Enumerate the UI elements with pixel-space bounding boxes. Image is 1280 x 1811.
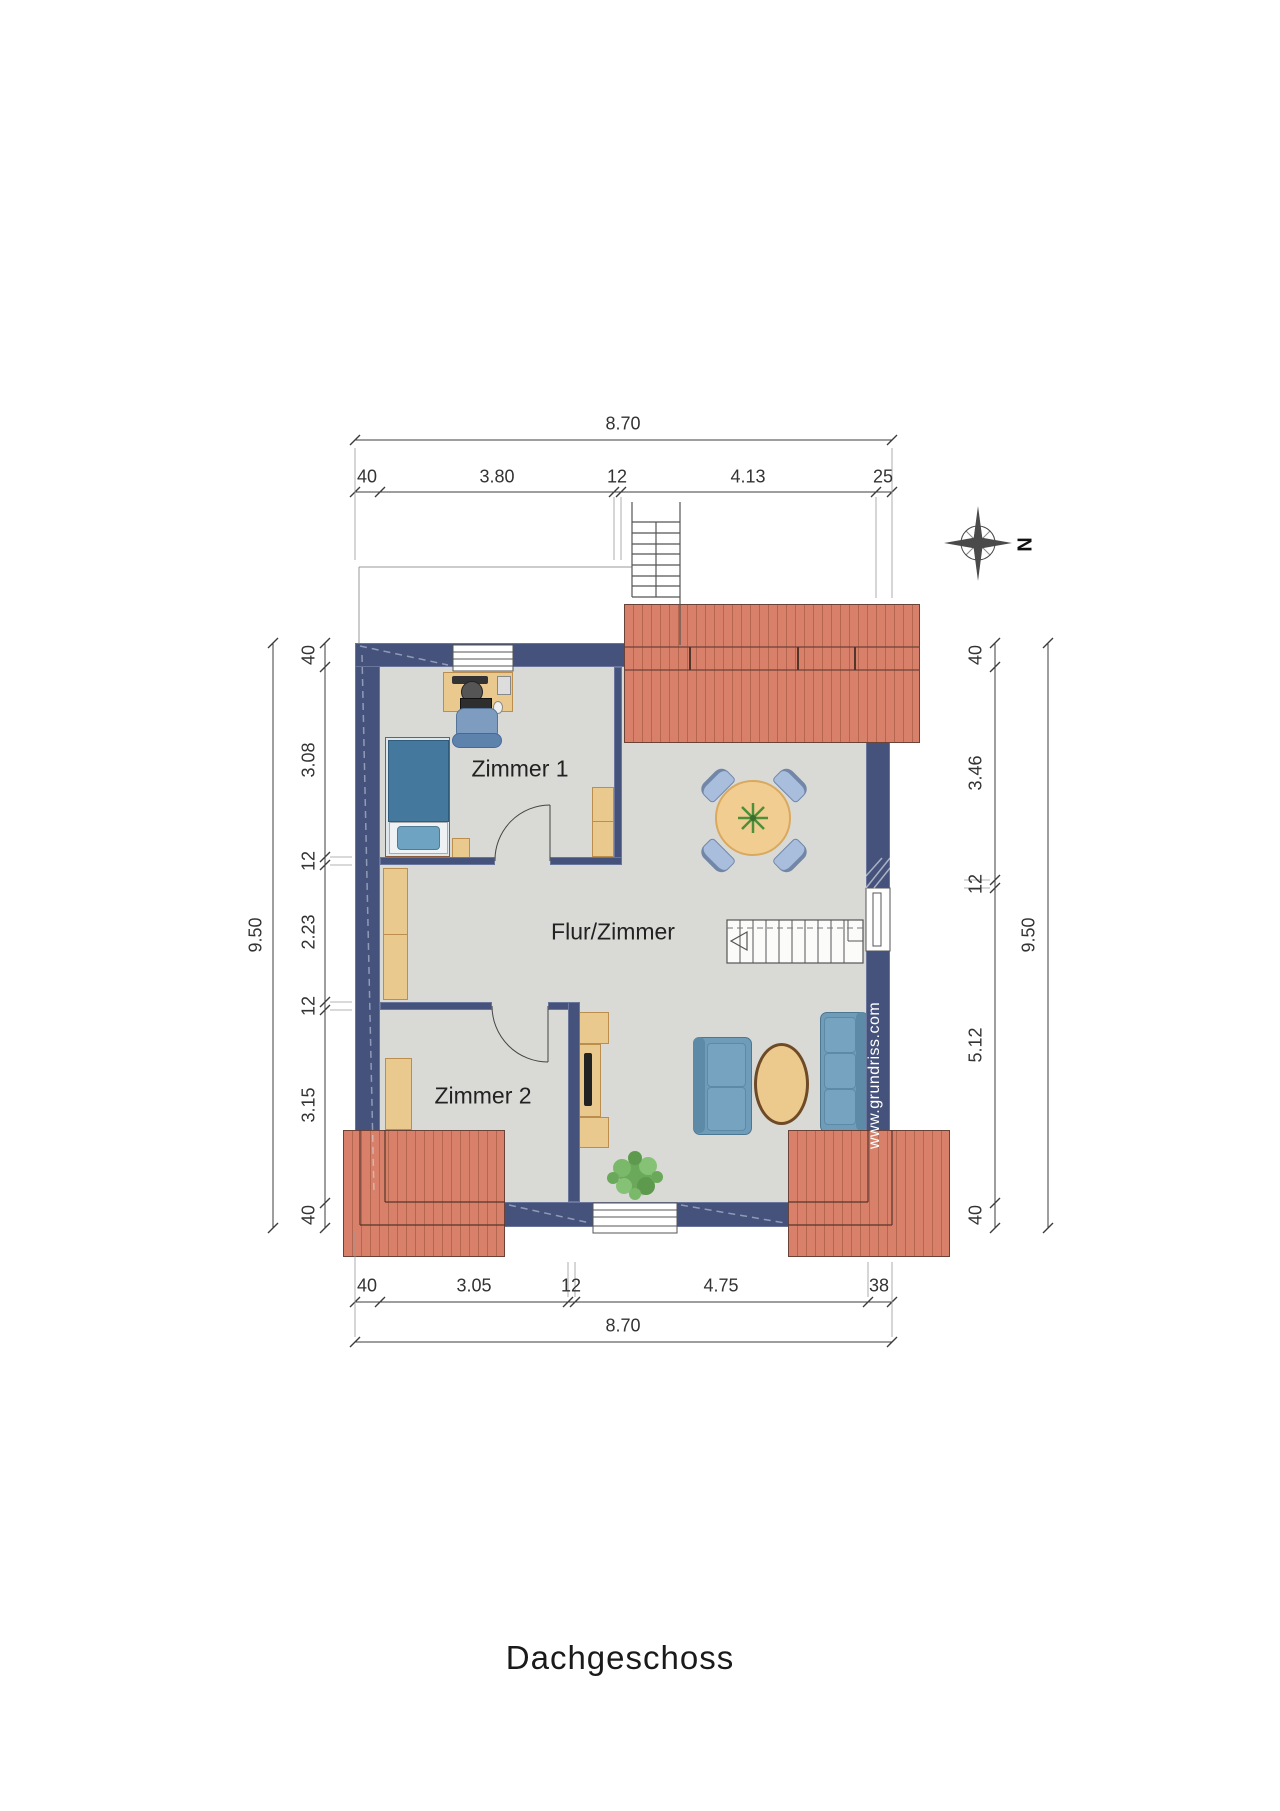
sideboard-top bbox=[579, 1012, 609, 1044]
sideboard-bottom bbox=[579, 1117, 609, 1148]
dim-left-seg: 40 bbox=[299, 1205, 320, 1225]
dim-top-seg: 25 bbox=[873, 467, 893, 488]
room-label-zimmer2: Zimmer 2 bbox=[434, 1083, 531, 1110]
dim-left-seg: 12 bbox=[299, 851, 320, 871]
room-label-zimmer1: Zimmer 1 bbox=[471, 756, 568, 783]
wardrobe-zimmer1 bbox=[592, 787, 614, 857]
tv-icon bbox=[584, 1053, 592, 1106]
wall-zimmer2-right bbox=[568, 1002, 580, 1202]
bed-pillow bbox=[397, 826, 440, 850]
desk-chair-back bbox=[452, 733, 502, 748]
dim-top-seg: 12 bbox=[607, 467, 627, 488]
sofa-two-seater-back bbox=[693, 1037, 705, 1133]
wall-zimmer1-right bbox=[614, 667, 622, 865]
dim-right-seg: 3.46 bbox=[966, 755, 987, 790]
dim-left-seg: 2.23 bbox=[299, 914, 320, 949]
dim-bottom-seg: 12 bbox=[561, 1276, 581, 1297]
floorplan-canvas: Zimmer 1 Flur/Zimmer Zimmer 2 www.grundr… bbox=[0, 0, 1280, 1811]
dim-bottom-seg: 38 bbox=[869, 1276, 889, 1297]
wardrobe-zimmer1-divider bbox=[593, 821, 613, 822]
watermark-text: www.grundriss.com bbox=[866, 958, 890, 1193]
nightstand bbox=[452, 838, 470, 858]
phone-icon bbox=[497, 676, 511, 695]
compass-north-label: N bbox=[1012, 537, 1035, 551]
dim-top-overall: 8.70 bbox=[605, 414, 640, 435]
dim-bottom-overall: 8.70 bbox=[605, 1316, 640, 1337]
dining-table bbox=[715, 780, 791, 856]
room-label-flur: Flur/Zimmer bbox=[551, 919, 675, 946]
dim-bottom-seg: 4.75 bbox=[703, 1276, 738, 1297]
dim-left-overall: 9.50 bbox=[246, 917, 267, 952]
dim-right-seg: 5.12 bbox=[966, 1027, 987, 1062]
dim-right-seg: 40 bbox=[966, 645, 987, 665]
dim-bottom-seg: 3.05 bbox=[456, 1276, 491, 1297]
sofa-three-seater-cushion bbox=[824, 1053, 856, 1089]
dim-left-seg: 3.08 bbox=[299, 742, 320, 777]
dim-right-seg: 40 bbox=[966, 1205, 987, 1225]
dim-left-seg: 40 bbox=[299, 645, 320, 665]
dim-left-seg: 12 bbox=[299, 996, 320, 1016]
dim-right-seg: 12 bbox=[966, 874, 987, 894]
sofa-three-seater-cushion bbox=[824, 1017, 856, 1053]
sofa-two-seater-cushion bbox=[707, 1087, 746, 1131]
dim-top-seg: 4.13 bbox=[730, 467, 765, 488]
sofa-two-seater-cushion bbox=[707, 1043, 746, 1087]
sofa-three-seater-cushion bbox=[824, 1089, 856, 1125]
wardrobe-flur-divider bbox=[384, 934, 407, 935]
bed-duvet bbox=[388, 740, 449, 822]
dim-right-overall: 9.50 bbox=[1019, 917, 1040, 952]
roof-bottom-left bbox=[343, 1130, 505, 1257]
dim-top-seg: 3.80 bbox=[479, 467, 514, 488]
dim-bottom-seg: 40 bbox=[357, 1276, 377, 1297]
compass-icon bbox=[944, 506, 1012, 581]
wardrobe-zimmer2 bbox=[385, 1058, 412, 1130]
dim-top-seg: 40 bbox=[357, 467, 377, 488]
roof-top-right bbox=[624, 604, 920, 743]
wall-flur-zimmer2-a bbox=[380, 1002, 492, 1010]
wall-zimmer1-flur-b bbox=[550, 857, 622, 865]
coffee-table-oval bbox=[754, 1043, 809, 1125]
page-title: Dachgeschoss bbox=[506, 1639, 734, 1677]
dim-left-seg: 3.15 bbox=[299, 1087, 320, 1122]
wall-zimmer1-flur-a bbox=[380, 857, 495, 865]
